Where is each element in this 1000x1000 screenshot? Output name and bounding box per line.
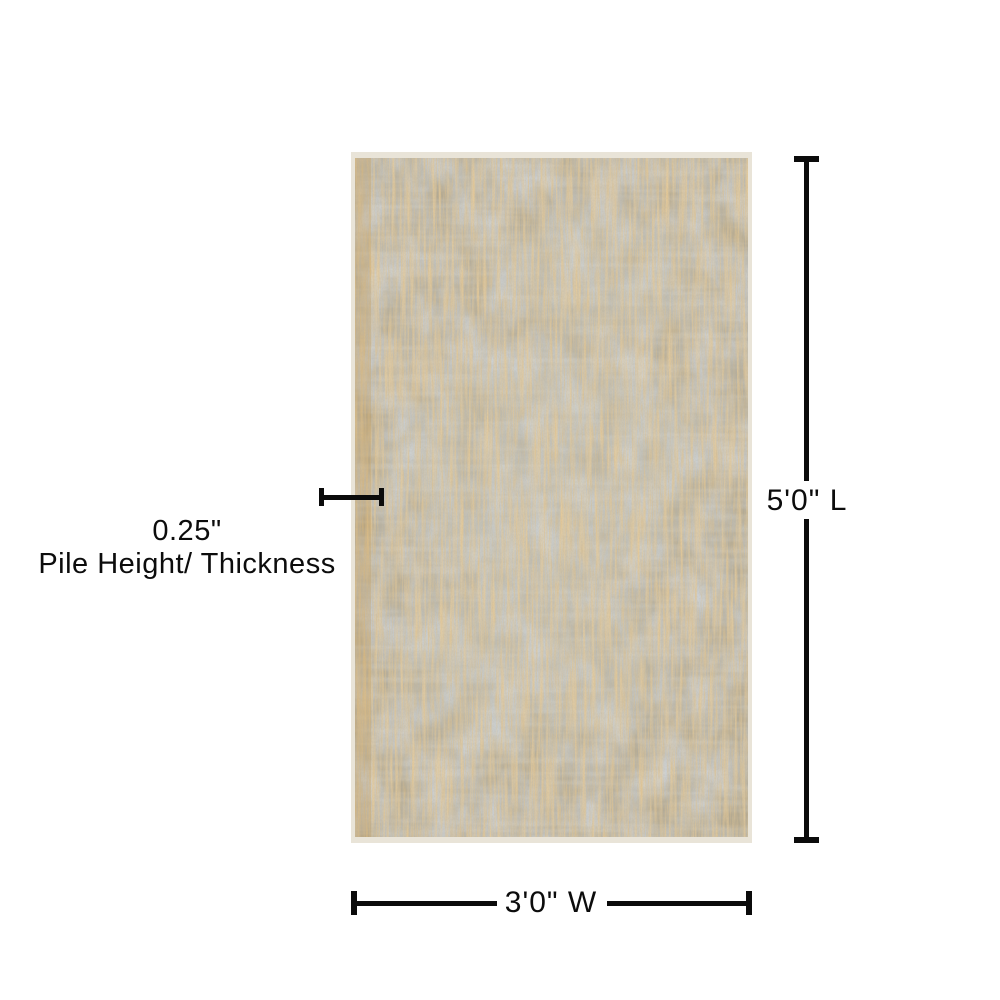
width-line-right-cap (746, 891, 752, 915)
width-label: 3'0" W (505, 886, 597, 920)
rug-image (351, 152, 752, 843)
length-line-bottom-cap (794, 837, 819, 843)
product-dimension-diagram: 5'0" L 3'0" W 0.25" Pile Height/ Thickne… (0, 0, 1000, 1000)
length-label: 5'0" L (767, 484, 848, 518)
pile-height-text-block: 0.25" Pile Height/ Thickness (38, 515, 335, 581)
width-line-right-segment (607, 901, 749, 906)
pile-value-label: 0.25" (38, 515, 335, 548)
pile-line-right-cap (379, 488, 384, 506)
rug-texture (355, 158, 748, 837)
length-line-lower-segment (804, 519, 809, 841)
width-line-left-segment (355, 901, 497, 906)
pile-line (322, 495, 383, 500)
pile-caption-label: Pile Height/ Thickness (38, 548, 335, 581)
length-line-upper-segment (804, 156, 809, 481)
